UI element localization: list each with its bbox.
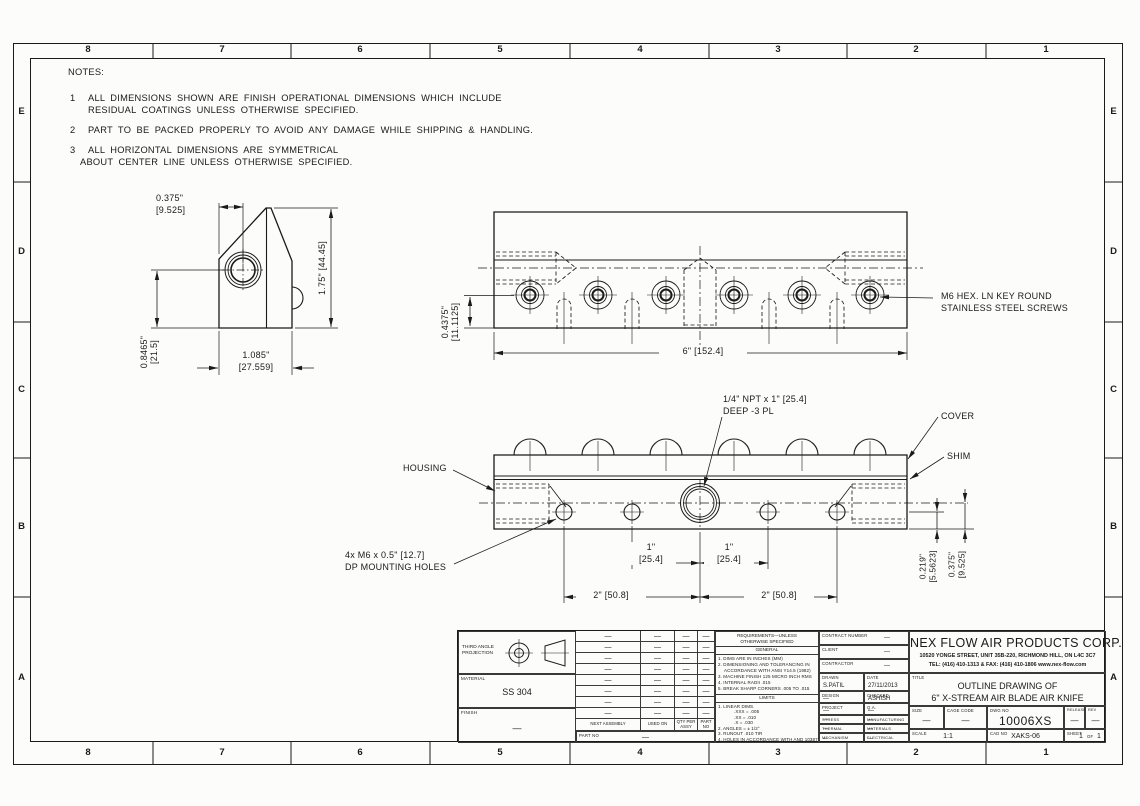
parts-list-cell: — [576, 642, 641, 653]
dim-depth: 1.085"[27.559] [216, 350, 296, 373]
zone-number: 7 [207, 747, 237, 758]
zone-number: 8 [73, 747, 103, 758]
drawing-sheet: 8 7 6 5 4 3 2 1 8 7 6 5 4 3 2 1 E D C B … [0, 0, 1140, 806]
screw-heads-front [514, 439, 886, 455]
housing-label: HOUSING [403, 463, 447, 475]
mounting-holes-note: 4x M6 x 0.5" [12.7]DP MOUNTING HOLES [345, 550, 446, 573]
zone-letter: C [1106, 384, 1121, 395]
zone-number: 1 [1031, 747, 1061, 758]
dwg-no-value: 10006XS [988, 714, 1063, 728]
design-cell: DESIGN — [819, 691, 864, 703]
company-phone: TEL: (416) 410-1313 & FAX: (416) 410-180… [910, 662, 1105, 669]
part-no-row: PART NO — [576, 731, 715, 743]
company-address: 10520 YONGE STREET, UNIT 35B-220, RICHMO… [910, 653, 1105, 660]
zone-letter: D [1106, 246, 1121, 257]
zone-number: 6 [345, 747, 375, 758]
dim-1in-right: 1"[25.4] [704, 542, 754, 565]
zone-letter: B [14, 521, 29, 532]
note-1: ALL DIMENSIONS SHOWN ARE FINISH OPERATIO… [88, 92, 502, 104]
dim-hole-center: 0.8465"[21.5] [139, 322, 161, 382]
npt-note: 1/4" NPT x 1" [25.4]DEEP -3 PL [723, 394, 807, 417]
contract-number-cell: CONTRACT NUMBER — [819, 631, 909, 645]
material-value: SS 304 [459, 687, 575, 697]
company-name: NEX FLOW AIR PRODUCTS CORP. [910, 635, 1105, 651]
size-cell: SIZE — [909, 706, 944, 729]
note-3: ALL HORIZONTAL DIMENSIONS ARE SYMMETRICA… [88, 144, 338, 156]
finish-value: — [459, 723, 575, 733]
zone-number: 2 [901, 747, 931, 758]
third-angle-projection-icon [503, 637, 571, 669]
parts-list: ———— ———— ———— ———— ———— ———— ———— ———— … [576, 631, 715, 730]
parts-list-cell: — [576, 697, 641, 708]
release-cell: RELEASE — [1064, 706, 1085, 729]
parts-list-cell: — [576, 686, 641, 697]
zone-letter: E [14, 106, 29, 117]
cad-no-cell: CAD NO XAKS-06 [987, 729, 1064, 743]
dim-2in-left: 2" [50.8] [576, 590, 646, 602]
zone-letter: D [14, 246, 29, 257]
sheet-cell: SHEET 1 OF 1 [1064, 729, 1106, 743]
zone-letter: B [1106, 521, 1121, 532]
material-label: MATERIAL [461, 676, 485, 681]
mounting-holes-front [556, 504, 845, 520]
zone-number: 3 [763, 747, 793, 758]
zone-letter: C [14, 384, 29, 395]
notes-heading: NOTES: [68, 66, 104, 78]
title-cell: TITLE OUTLINE DRAWING OF 6" X-STREAM AIR… [909, 673, 1106, 706]
cover-label: COVER [941, 411, 974, 423]
drawn-cell: DRAWN S.PATIL [819, 673, 864, 691]
project-cell: PROJECT — [819, 703, 864, 715]
used-on-header: USED ON [641, 719, 675, 731]
zone-number: 8 [73, 44, 103, 55]
zone-number: 3 [763, 44, 793, 55]
zone-number: 2 [901, 44, 931, 55]
zone-number: 6 [345, 44, 375, 55]
front-view [453, 417, 974, 603]
qty-per-assy-header: QTY PERASSY [675, 719, 698, 731]
dim-cover-offset: 0.375"[9.525] [948, 534, 969, 596]
zone-number: 4 [625, 747, 655, 758]
stress-cell: STRESS — [819, 715, 864, 724]
materials-cell: MATERIALS — [864, 724, 909, 733]
dim-length: 6" [152.4] [659, 346, 747, 358]
manufacturing-cell: MANUFACTURING — [864, 715, 909, 724]
rev-cell: REV — [1085, 706, 1106, 729]
projection-cell: THIRD ANGLE PROJECTION [458, 631, 576, 674]
zone-letter: A [14, 672, 29, 683]
dim-width: 0.375"[9.525] [156, 193, 185, 216]
material-cell: MATERIAL SS 304 [458, 674, 576, 708]
qa-cell: Q.A. — [864, 703, 909, 715]
title-block: THIRD ANGLE PROJECTION MATERIAL SS 304 F… [457, 630, 1105, 742]
electrical-cell: ELECTRICAL — [864, 733, 909, 743]
drawing-title-line1: OUTLINE DRAWING OF [910, 681, 1105, 693]
parts-list-cell: — [576, 653, 641, 664]
requirements-cell: REQUIREMENTS—UNLESS OTHERWISE SPECIFIED … [715, 631, 819, 743]
scale-cell: SCALE 1:1 [909, 729, 987, 743]
general-section-label: GENERAL [716, 647, 818, 655]
screw-note: M6 HEX. LN KEY ROUNDSTAINLESS STEEL SCRE… [941, 291, 1068, 314]
thermal-cell: THERMAL — [819, 724, 864, 733]
cage-code-cell: CAGE CODE — [944, 706, 987, 729]
zone-letter: A [1106, 672, 1121, 683]
parts-list-cell: — [576, 708, 641, 719]
dim-1in-left: 1"[25.4] [626, 542, 676, 565]
dim-height: 1.75" [44.45] [317, 208, 329, 328]
parts-list-cell: — [576, 675, 641, 686]
parts-list-cell: — [576, 631, 641, 642]
part-no-header: PART NO [698, 719, 715, 731]
date-cell: DATE 27/11/2013 [864, 673, 909, 691]
shim-label: SHIM [947, 451, 971, 463]
scale-value: 1:1 [910, 733, 986, 740]
limits-section-label: LIMITS [716, 695, 818, 703]
top-view [464, 212, 933, 360]
dim-edge: 0.4375"[11.1125] [440, 290, 462, 354]
drawing-title-line2: 6" X-STREAM AIR BLADE AIR KNIFE [910, 693, 1105, 705]
next-assembly-header: NEXT ASSEMBLY [576, 719, 641, 731]
cad-no-value: XAKS-06 [988, 733, 1063, 740]
contractor-cell: CONTRACTOR — [819, 659, 909, 673]
company-cell: NEX FLOW AIR PRODUCTS CORP. 10520 YONGE … [909, 631, 1106, 673]
dwg-no-cell: DWG NO 10006XS [987, 706, 1064, 729]
zone-number: 4 [625, 44, 655, 55]
zone-number: 5 [485, 747, 515, 758]
zone-letter: E [1106, 106, 1121, 117]
finish-label: FINISH [461, 710, 477, 715]
dim-shim-gap: 0.219"[5.5623] [919, 536, 940, 598]
finish-cell: FINISH — [458, 708, 576, 743]
checked-cell: CHECKED ASHISH [864, 691, 909, 703]
note-2: PART TO BE PACKED PROPERLY TO AVOID ANY … [88, 124, 533, 136]
dim-2in-right: 2" [50.8] [744, 590, 814, 602]
parts-list-cell: — [576, 664, 641, 675]
zone-number: 7 [207, 44, 237, 55]
zone-number: 5 [485, 44, 515, 55]
mechanism-cell: MECHANISM — [819, 733, 864, 743]
zone-number: 1 [1031, 44, 1061, 55]
client-cell: CLIENT — [819, 645, 909, 659]
